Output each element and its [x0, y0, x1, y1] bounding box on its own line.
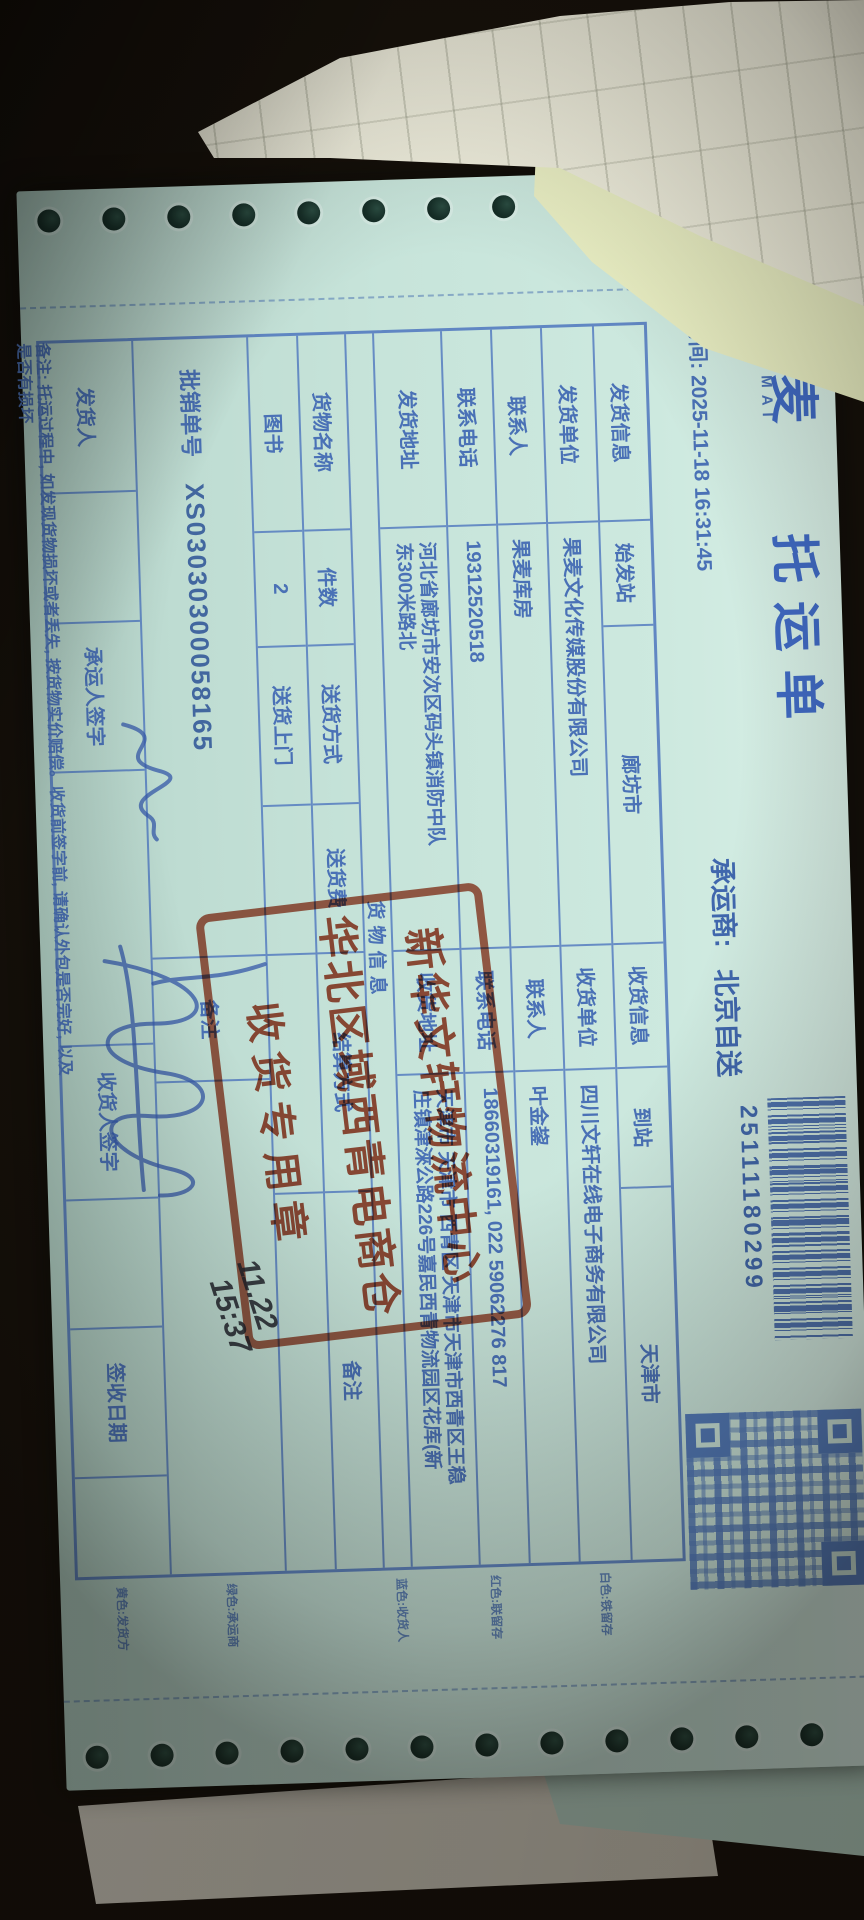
- bottom-note-line2: 是否有损坏: [13, 343, 40, 424]
- delivery-method-value: 送货上门: [258, 644, 311, 805]
- recv-info-header: 收货信息: [613, 942, 667, 1068]
- feed-hole: [492, 195, 516, 219]
- sign-date-label: 签收日期: [70, 1326, 167, 1478]
- barcode: [767, 1096, 853, 1340]
- carrier-line: 承运商: 北京自送: [705, 857, 751, 1078]
- feed-hole: [232, 203, 256, 227]
- feed-hole: [85, 1745, 109, 1769]
- feed-hole: [475, 1733, 499, 1757]
- feed-hole: [215, 1741, 239, 1765]
- qr-finder: [821, 1541, 864, 1586]
- origin-value: 廊坊市: [603, 623, 663, 943]
- qr-finder: [685, 1413, 730, 1458]
- delivery-method-label: 送货方式: [308, 643, 359, 804]
- dest-label: 到站: [617, 1066, 671, 1187]
- waybill-sheet: 果麦 GUOMAI 托运单 时间: 2025-11-18 16:31:45 承运…: [16, 166, 864, 1791]
- waybill-form: 果麦 GUOMAI 托运单 时间: 2025-11-18 16:31:45 承运…: [16, 166, 864, 1791]
- qr-code: [685, 1409, 864, 1590]
- feed-hole: [345, 1737, 369, 1761]
- waybill-number: 25111180299: [733, 1105, 767, 1293]
- feed-hole: [280, 1739, 304, 1763]
- sign-date-value: [75, 1475, 170, 1577]
- feed-hole: [167, 205, 191, 229]
- receiver-contact-label: 联系人: [511, 945, 563, 1071]
- feed-hole: [605, 1729, 629, 1753]
- feed-hole: [297, 201, 321, 225]
- origin-label: 始发站: [600, 519, 653, 625]
- feed-hole: [427, 197, 451, 221]
- carrier-value: 北京自送: [710, 969, 743, 1078]
- print-timestamp: 时间: 2025-11-18 16:31:45: [683, 320, 721, 572]
- order-number: XS03030300058165: [179, 483, 218, 753]
- copy-legend: 蓝色:收货人: [393, 1578, 412, 1643]
- qr-finder: [817, 1409, 862, 1454]
- shipper-unit-label: 发货单位: [542, 326, 598, 522]
- feed-hole: [540, 1731, 564, 1755]
- feed-hole: [410, 1735, 434, 1759]
- feed-hole: [37, 209, 61, 233]
- ship-info-header: 发货信息: [594, 325, 650, 521]
- perforation-line: [64, 1675, 864, 1703]
- goods-qty-value: 2: [254, 530, 306, 646]
- stamp-line3: 收货专用章: [237, 998, 324, 1253]
- goods-name-value: 图书: [248, 336, 302, 531]
- carrier-label: 承运商:: [707, 857, 740, 948]
- shipper-addr-line2: 东300米路北: [391, 542, 417, 650]
- receiver-sign-value: [66, 1196, 162, 1328]
- copy-legend: 白色:铁留存: [597, 1571, 616, 1636]
- shipper-contact-label: 联系人: [492, 328, 546, 523]
- order-label: 批销单号: [175, 369, 210, 458]
- photo-of-waybill: 果麦 GUOMAI 托运单 时间: 2025-11-18 16:31:45 承运…: [0, 0, 864, 1920]
- form-title: 托运单: [762, 532, 840, 738]
- stamp-line1: 新华文轩物流中心: [394, 924, 497, 1289]
- copy-legend: 黄色:发货方: [113, 1587, 132, 1652]
- shipper-addr-line1: 河北省廊坊市安次区码头镇消防中队: [414, 542, 446, 847]
- goods-qty-label: 件数: [304, 528, 354, 644]
- dest-value: 天津市: [621, 1185, 683, 1560]
- copy-legend: 绿色:承运商: [223, 1583, 242, 1648]
- order-cell: 批销单号 XS03030300058165: [133, 337, 265, 957]
- receiver-unit-label: 收货单位: [561, 943, 615, 1069]
- copy-legend: 红色:联留存: [487, 1575, 506, 1640]
- feed-hole: [362, 199, 386, 223]
- shipper-addr-label: 发货地址: [374, 331, 446, 527]
- feed-hole: [150, 1743, 174, 1767]
- feed-hole: [735, 1725, 759, 1749]
- feed-hole: [670, 1727, 694, 1751]
- feed-hole: [800, 1723, 824, 1747]
- feed-hole: [102, 207, 126, 231]
- shipper-phone-label: 联系电话: [442, 330, 496, 525]
- goods-name-label: 货物名称: [298, 334, 350, 529]
